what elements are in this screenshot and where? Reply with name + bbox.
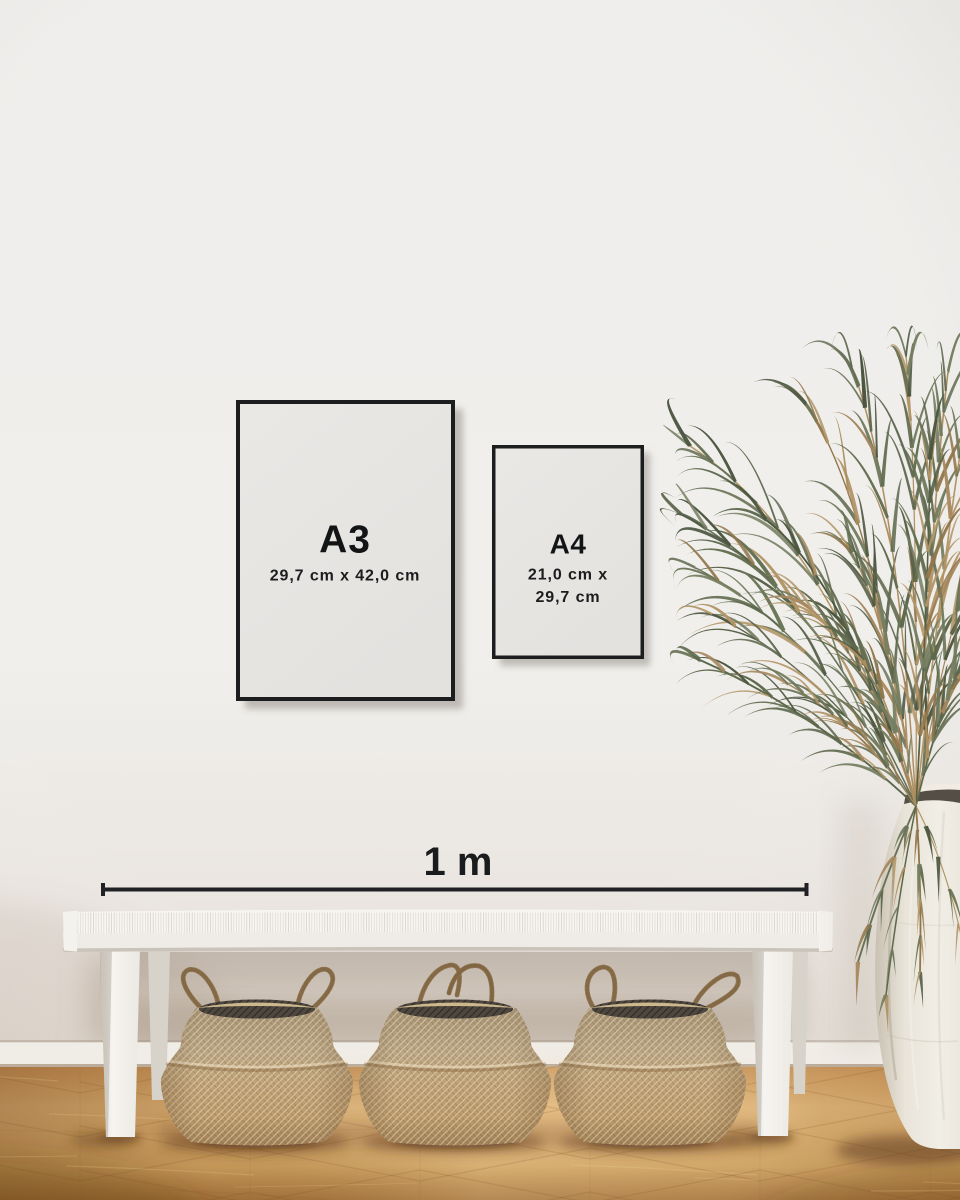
svg-text:A4: A4 [550,529,587,560]
svg-text:29,7 cm x 42,0 cm: 29,7 cm x 42,0 cm [270,568,421,585]
svg-text:21,0 cm x: 21,0 cm x [528,567,608,584]
svg-text:29,7 cm: 29,7 cm [535,589,600,606]
svg-text:A3: A3 [319,519,371,562]
svg-text:1 m: 1 m [424,840,493,884]
